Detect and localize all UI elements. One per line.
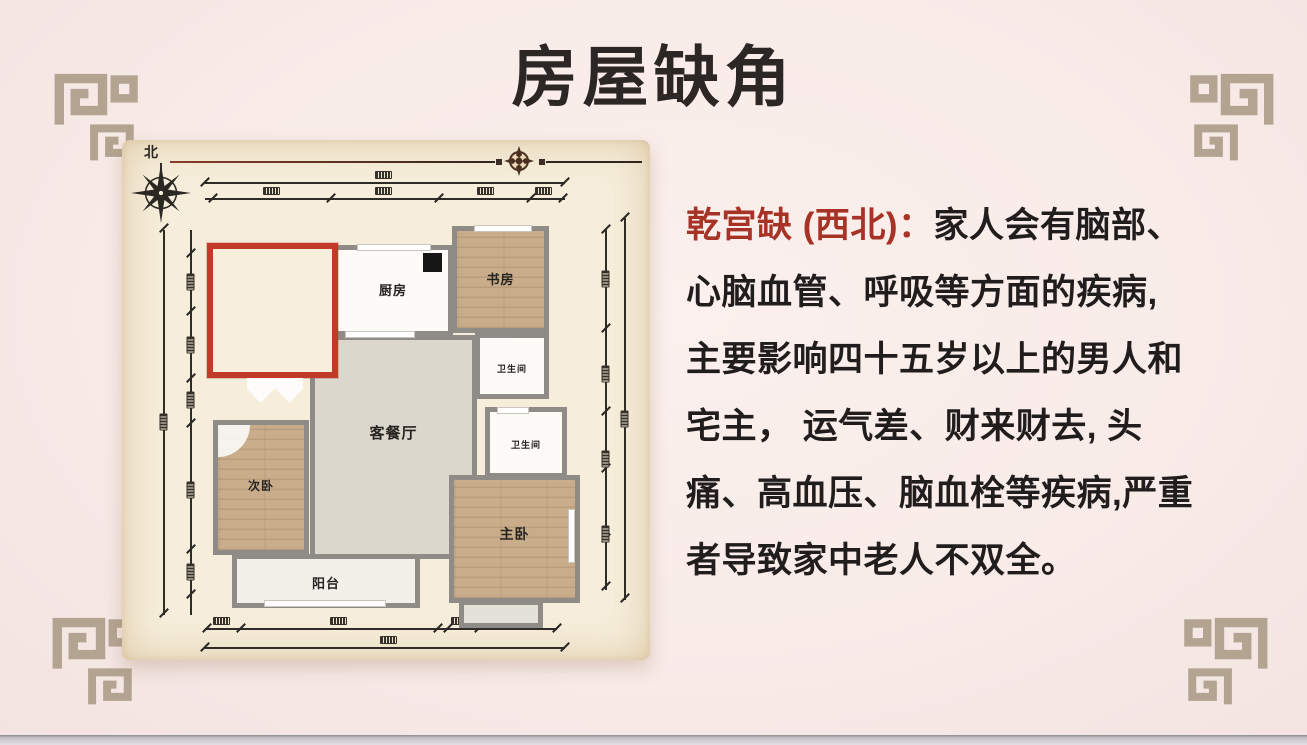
room-balcony: 阳台 [232, 554, 420, 608]
room-master-bedroom: 主卧 [449, 475, 580, 603]
dimension-line-right-segments [605, 230, 607, 590]
room-label: 阳台 [237, 573, 415, 592]
corner-ornament-bottom-right-icon [1184, 616, 1270, 710]
stove-icon [423, 253, 442, 272]
room-label: 书房 [457, 269, 544, 288]
decorative-square [539, 159, 545, 165]
room-kitchen: 厨房 [333, 245, 453, 336]
room-bathroom-2: 卫生间 [485, 407, 567, 478]
compass-north-label: 北 [144, 142, 158, 162]
medallion-compass-icon [504, 146, 534, 176]
description-line: 心脑血管、呼吸等方面的疾病, [686, 259, 1266, 326]
description-line: 者导致家中老人不双全。 [686, 527, 1266, 594]
decorative-rule-left [170, 161, 495, 163]
room-second-bedroom: 次卧 [213, 420, 309, 555]
window [475, 226, 531, 231]
window [358, 245, 430, 250]
floorplan-image: 北 [122, 140, 650, 660]
door-arc [480, 338, 506, 364]
compass-rose-icon [130, 162, 192, 224]
dimension-line-left-segments [190, 230, 192, 615]
entry-door [247, 378, 303, 403]
room-label: 厨房 [338, 280, 448, 299]
ac-platform [459, 600, 543, 628]
description-block: 乾宫缺 (西北)：家人会有脑部、 心脑血管、呼吸等方面的疾病, 主要影响四十五岁… [686, 192, 1266, 594]
dimension-line-bottom-overall [205, 647, 565, 649]
room-label: 客餐厅 [315, 422, 472, 443]
description-line: 宅主， 运气差、财来财去, 头 [686, 393, 1266, 460]
description-line: 主要影响四十五岁以上的男人和 [686, 326, 1266, 393]
room-label: 卫生间 [480, 362, 544, 375]
dimension-line-top-segments [205, 198, 565, 200]
room-label: 次卧 [218, 477, 304, 494]
dimension-line-bottom-segments [205, 628, 557, 630]
description-lead: 乾宫缺 (西北)： [686, 206, 934, 245]
description-line: 乾宫缺 (西北)：家人会有脑部、 [686, 192, 1266, 259]
dimension-line-left-overall [163, 230, 165, 615]
room-bathroom-1: 卫生间 [475, 333, 549, 399]
bottom-edge-strip [0, 735, 1307, 745]
room-study: 书房 [452, 226, 549, 333]
description-line: 痛、高血压、脑血栓等疾病,严重 [686, 460, 1266, 527]
window [498, 408, 528, 413]
decorative-rule-right [546, 161, 642, 163]
dimension-line-top-overall [205, 182, 565, 184]
room-label: 主卧 [454, 524, 575, 544]
window [569, 510, 574, 562]
window [346, 332, 414, 337]
room-label: 卫生间 [490, 438, 562, 451]
page-title: 房屋缺角 [0, 24, 1307, 120]
window [265, 601, 385, 606]
infographic-page: 房屋缺角 北 [0, 0, 1307, 745]
dimension-line-right-overall [624, 218, 626, 600]
missing-corner-highlight [207, 243, 338, 378]
door-arc [218, 425, 250, 457]
decorative-square [496, 159, 502, 165]
